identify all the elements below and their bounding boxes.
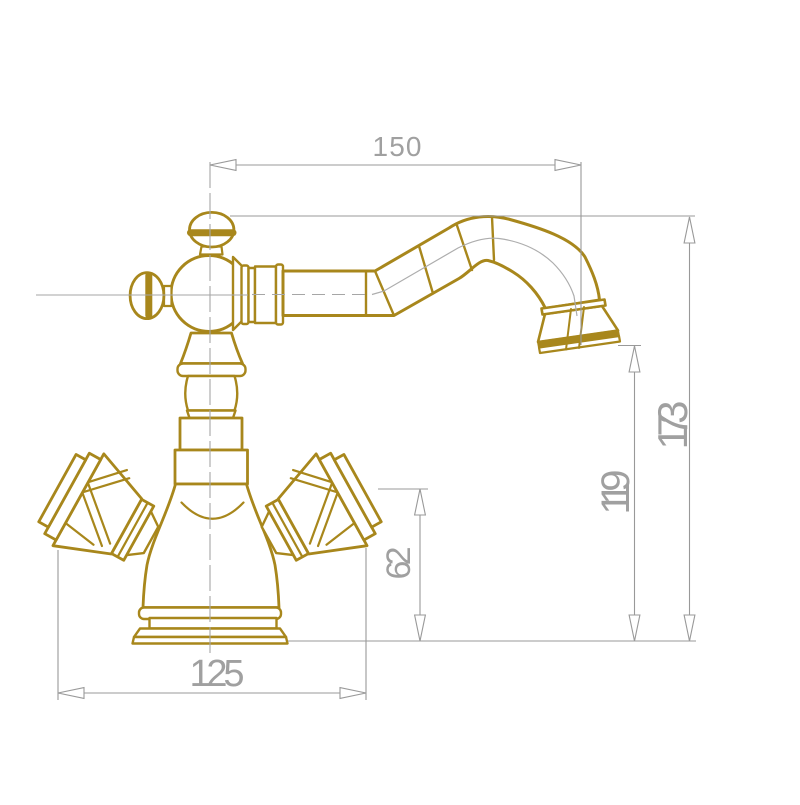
svg-text:125: 125: [190, 653, 245, 695]
svg-text:119: 119: [594, 470, 638, 515]
svg-text:62: 62: [380, 547, 418, 580]
svg-text:150: 150: [373, 131, 422, 162]
svg-text:173: 173: [649, 401, 696, 450]
